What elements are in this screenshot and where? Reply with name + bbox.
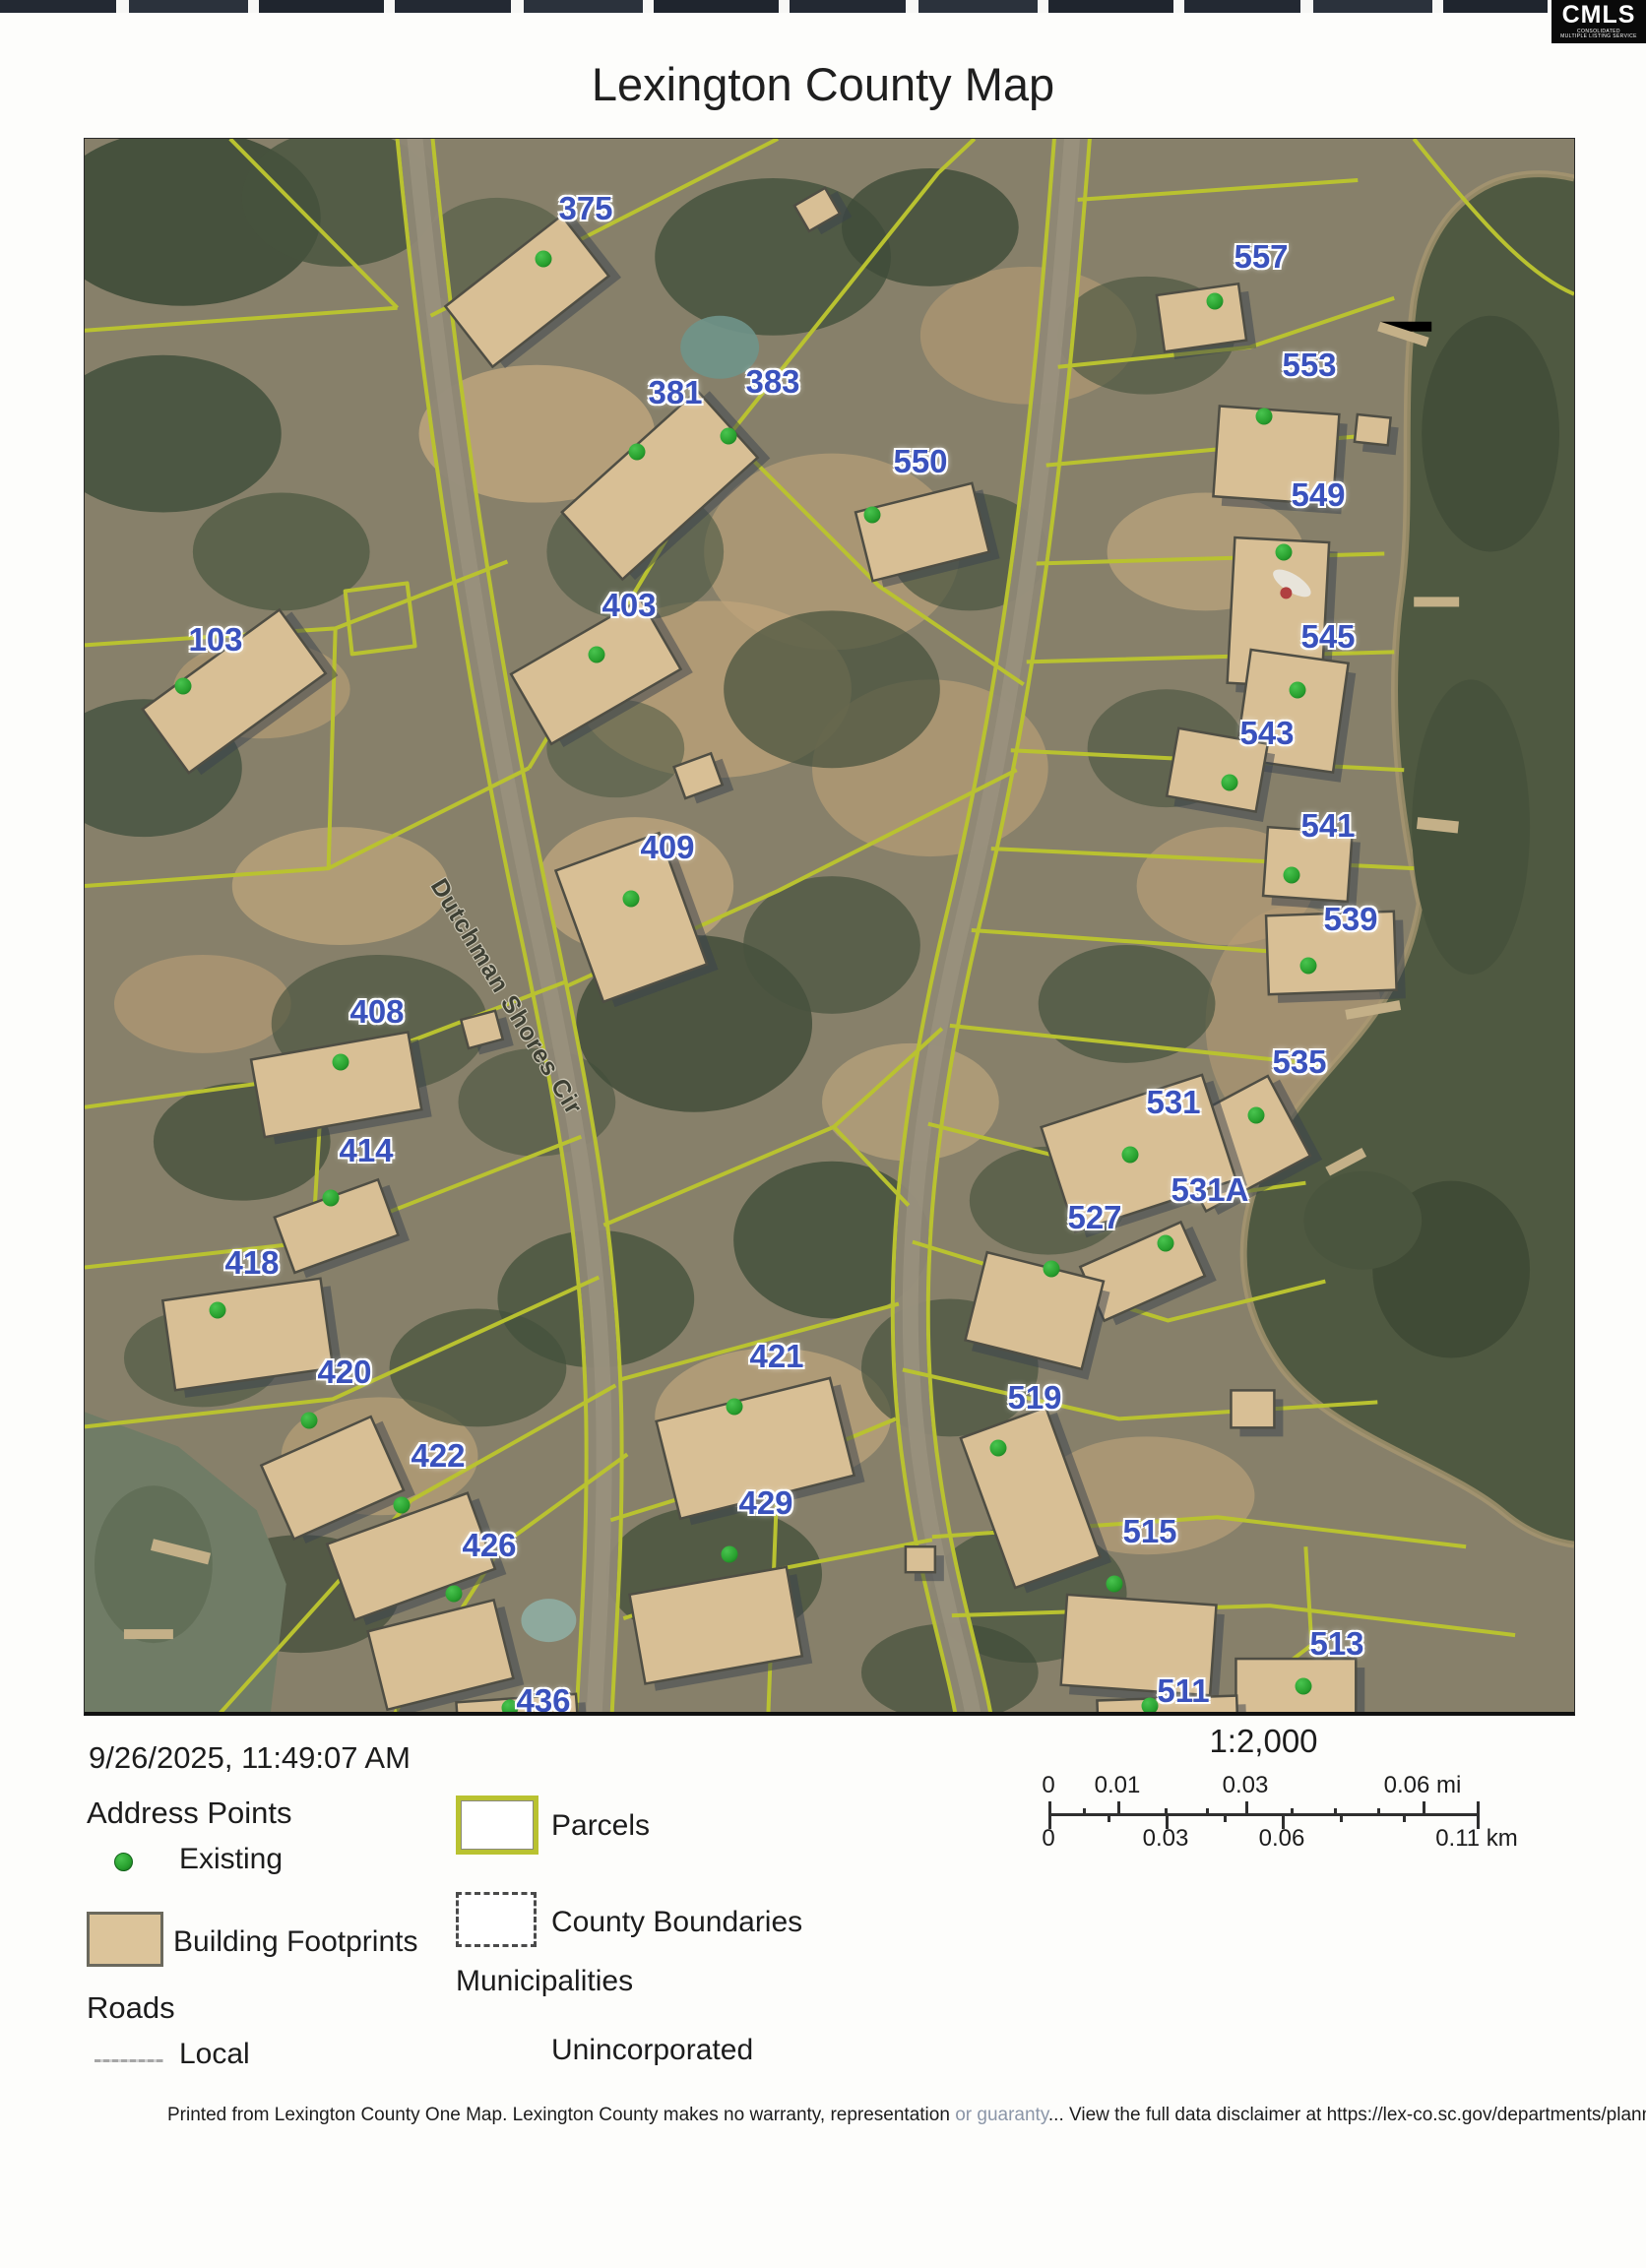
disclaimer-part1: Printed from Lexington County One Map. L… [167,2105,955,2125]
scalebar-tick [1291,1808,1294,1816]
address-label-421: 421 [749,1338,803,1375]
address-label-429: 429 [738,1484,792,1522]
printed-map-page: { "logo": {"text": "CMLS", "subtext1": "… [0,0,1646,2268]
map-area: 3753813835505575535491034035455435415394… [84,138,1575,1716]
address-point-dot [1044,1261,1060,1278]
address-point-dot [864,507,881,524]
address-point-dot [990,1440,1007,1457]
address-point-dot [210,1302,226,1319]
scalebar-mi-label: 0.06 mi [1384,1772,1462,1799]
address-point-dot [1276,544,1293,561]
address-point-dot [1248,1107,1265,1124]
address-label-408: 408 [349,993,404,1031]
legend-roads-heading: Roads [87,1990,175,2026]
disclaimer-text: Printed from Lexington County One Map. L… [167,2105,1646,2126]
legend-county-boundaries-label: County Boundaries [551,1906,802,1939]
address-point-dot [589,647,605,663]
address-point-dot [1256,409,1273,425]
address-label-545: 545 [1300,618,1355,656]
address-point-dot [623,891,640,908]
scalebar-tick [1403,1814,1406,1822]
legend-unincorporated-label: Unincorporated [551,2034,753,2067]
address-label-557: 557 [1234,238,1288,276]
address-label-535: 535 [1272,1043,1326,1081]
address-point-dot [722,1546,738,1563]
address-point-dot [1207,293,1224,310]
address-label-383: 383 [745,363,799,401]
cmls-logo: CMLS CONSOLIDATED MULTIPLE LISTING SERVI… [1551,0,1646,43]
address-point-dot [1290,682,1306,699]
building-footprint [1157,283,1246,351]
scalebar-tick [1334,1808,1337,1816]
scalebar [1048,1813,1479,1816]
scalebar-tick [1083,1808,1086,1816]
scalebar-tick [1224,1814,1227,1822]
address-label-436: 436 [516,1682,570,1716]
address-point-dot [1300,958,1317,975]
scalebar-tick [1206,1808,1209,1816]
address-point-dot [175,678,192,695]
address-point-dot [1284,867,1300,884]
scalebar-tick [1377,1808,1380,1816]
scale-ratio: 1:2,000 [1048,1723,1479,1760]
address-label-527: 527 [1067,1199,1121,1236]
address-point-dot [446,1586,463,1603]
address-label-414: 414 [339,1132,393,1169]
cmls-logo-subtext2: MULTIPLE LISTING SERVICE [1551,34,1646,39]
page-title: Lexington County Map [0,57,1646,111]
address-label-403: 403 [601,587,656,624]
address-point-dot [536,251,552,268]
building-footprint [906,1546,935,1572]
address-point-dot [721,428,737,445]
address-label-531A: 531A [1171,1171,1249,1209]
legend-building-footprints-label: Building Footprints [173,1925,417,1959]
address-point-dot [629,444,646,461]
address-label-513: 513 [1309,1625,1363,1663]
scalebar-mi-label: 0 [1042,1772,1054,1799]
legend-local-label: Local [179,2038,250,2071]
address-label-541: 541 [1300,807,1355,845]
scalebar-mi-label: 0.01 [1095,1772,1141,1799]
scalebar-tick [1108,1814,1110,1822]
address-point-dot [301,1413,318,1429]
address-point-dot [1222,775,1238,791]
address-point-dot [394,1497,411,1514]
address-label-515: 515 [1122,1513,1176,1550]
scalebar-tick [1048,1814,1051,1829]
legend-municipalities-label: Municipalities [456,1965,633,1998]
scalebar-tick [1477,1814,1480,1829]
address-label-550: 550 [893,443,947,480]
parcels-swatch [456,1795,538,1855]
building-footprint [1231,1390,1274,1427]
address-label-418: 418 [224,1244,279,1282]
address-label-511: 511 [1157,1672,1209,1710]
address-point-dot [1158,1235,1174,1252]
local-road-swatch [95,2059,163,2062]
legend-existing-label: Existing [179,1843,283,1876]
building-footprint-swatch [87,1912,163,1967]
scalebar-km-label: 0.03 [1143,1825,1189,1853]
scalebar-km-label: 0 [1042,1825,1054,1853]
address-label-543: 543 [1239,715,1294,752]
address-point-dot [333,1054,349,1071]
scalebar-tick [1423,1801,1425,1816]
legend-address-points-heading: Address Points [87,1795,292,1831]
scalebar-km-label: 0.11 km [1435,1825,1518,1853]
cmls-logo-text: CMLS [1551,0,1646,30]
scalebar-tick [1117,1801,1120,1816]
address-label-375: 375 [558,190,612,227]
address-point-dot [1142,1698,1159,1715]
building-footprint [1355,414,1391,445]
address-point-dot [323,1190,340,1207]
address-label-549: 549 [1291,476,1345,514]
address-label-531: 531 [1146,1084,1200,1121]
scalebar-tick [1340,1814,1343,1822]
scalebar-tick [1166,1814,1169,1829]
address-label-422: 422 [411,1437,465,1475]
address-point-dot [727,1399,743,1416]
address-label-381: 381 [648,374,702,411]
print-timestamp: 9/26/2025, 11:49:07 AM [89,1740,411,1776]
address-label-539: 539 [1323,901,1377,938]
address-label-553: 553 [1282,346,1336,384]
county-boundaries-swatch [456,1892,537,1947]
scalebar-mi-label: 0.03 [1223,1772,1269,1799]
address-point-dot [1296,1678,1312,1695]
disclaimer-part2: or guaranty [955,2105,1048,2125]
address-point-dot [1107,1576,1123,1593]
scalebar-tick [1245,1801,1248,1816]
disclaimer-part3: ... View the full data disclaimer at htt… [1048,2105,1646,2125]
address-point-dot [1122,1147,1139,1164]
existing-point-swatch [114,1853,133,1871]
address-label-409: 409 [640,829,694,866]
address-label-519: 519 [1007,1379,1061,1417]
address-label-103: 103 [188,621,242,659]
address-label-420: 420 [317,1354,371,1391]
scan-artifact-strip [0,0,1548,13]
address-label-426: 426 [462,1527,516,1564]
legend-parcels-label: Parcels [551,1809,650,1843]
scalebar-km-label: 0.06 [1259,1825,1305,1853]
scalebar-tick [1282,1814,1285,1829]
